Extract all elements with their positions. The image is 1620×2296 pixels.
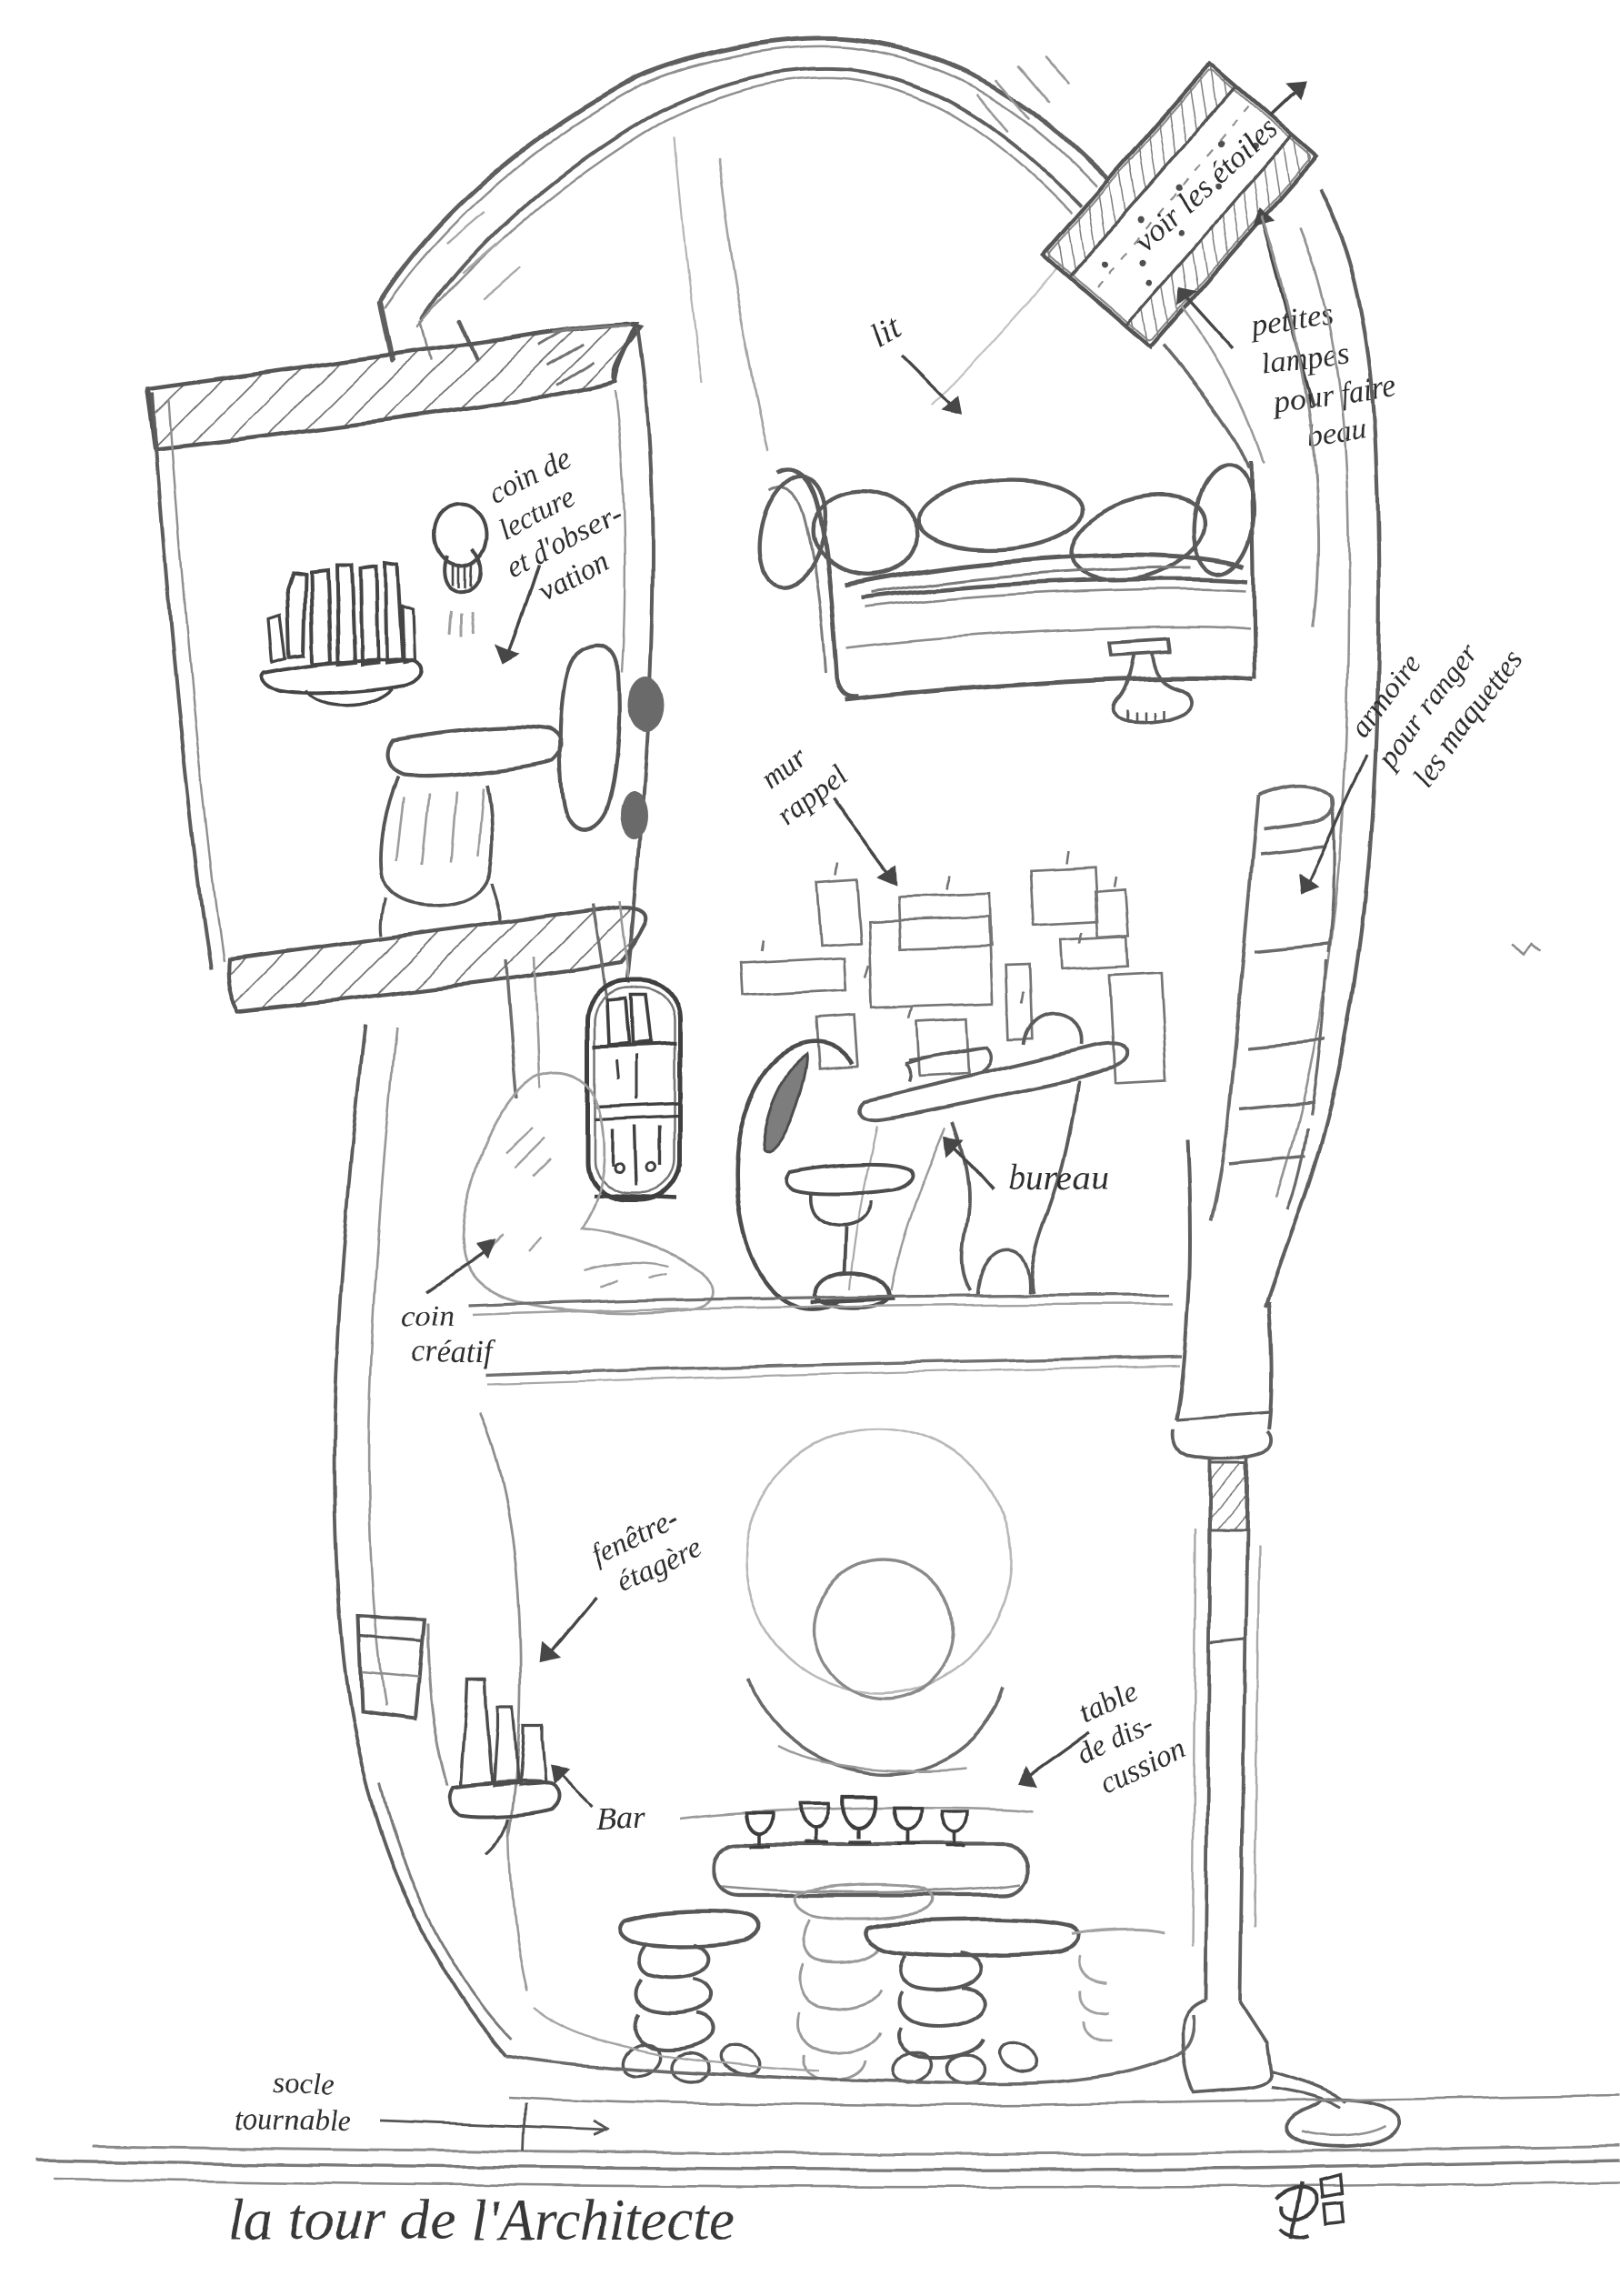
svg-text:socle: socle [273,2068,335,2100]
svg-text:Bar: Bar [596,1800,646,1837]
svg-text:bureau: bureau [1007,1157,1109,1198]
svg-text:lit: lit [864,306,909,355]
svg-text:coin: coin [402,1299,455,1333]
svg-text:créatif: créatif [411,1336,495,1369]
svg-text:tournable: tournable [235,2104,351,2137]
svg-text:la tour de l'Architecte: la tour de l'Architecte [229,2187,735,2251]
